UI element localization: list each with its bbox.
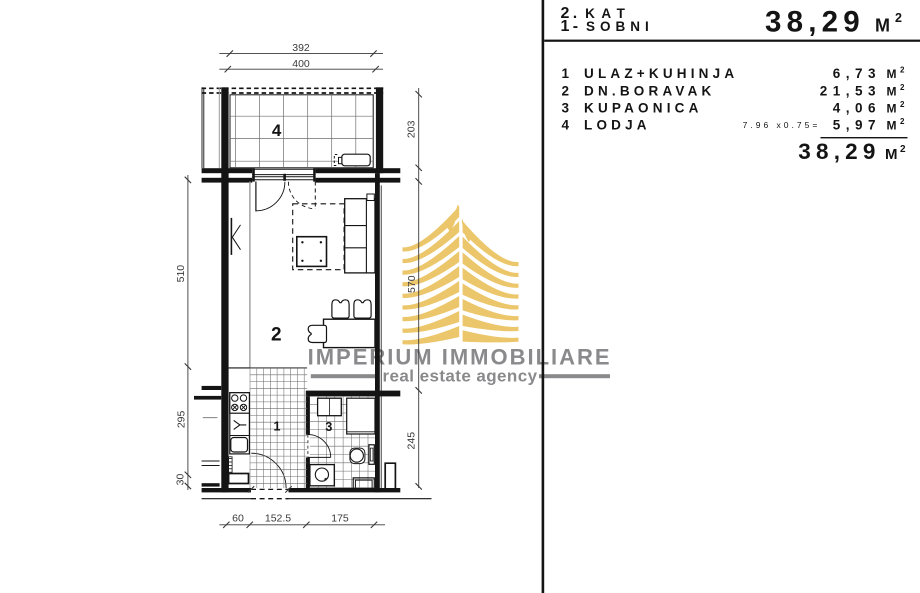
svg-text:ULAZ+KUHINJA: ULAZ+KUHINJA: [584, 66, 738, 81]
svg-text:392: 392: [292, 42, 310, 54]
svg-text:38,29: 38,29: [798, 139, 880, 164]
svg-text:175: 175: [331, 513, 349, 525]
svg-text:4,06: 4,06: [833, 100, 881, 115]
svg-text:1: 1: [274, 420, 281, 434]
svg-text:30: 30: [174, 474, 186, 486]
svg-text:38,29: 38,29: [765, 6, 865, 39]
svg-text:3: 3: [562, 100, 571, 115]
svg-text:KUPAONICA: KUPAONICA: [584, 100, 703, 115]
svg-text:21,53: 21,53: [820, 83, 881, 98]
svg-text:4: 4: [562, 118, 571, 133]
svg-text:5,97: 5,97: [833, 118, 881, 133]
svg-text:570: 570: [406, 275, 418, 293]
svg-text:2: 2: [271, 325, 282, 346]
svg-text:152.5: 152.5: [265, 513, 291, 525]
svg-text:295: 295: [175, 410, 187, 428]
svg-text:6,73: 6,73: [833, 66, 881, 81]
svg-text:7.96 x0.75=: 7.96 x0.75=: [743, 120, 821, 130]
svg-text:60: 60: [232, 513, 244, 525]
svg-text:400: 400: [292, 58, 310, 70]
svg-text:2: 2: [562, 83, 571, 98]
svg-text:203: 203: [406, 120, 418, 138]
svg-text:245: 245: [406, 432, 418, 450]
svg-text:1: 1: [562, 66, 571, 81]
svg-text:LODJA: LODJA: [584, 118, 651, 133]
svg-text:510: 510: [175, 265, 187, 283]
svg-text:1-SOBNI: 1-SOBNI: [561, 18, 654, 35]
svg-text:DN.BORAVAK: DN.BORAVAK: [584, 83, 716, 98]
svg-text:4: 4: [272, 121, 282, 140]
svg-text:3: 3: [325, 420, 332, 434]
svg-text:real estate agency: real estate agency: [383, 366, 538, 385]
